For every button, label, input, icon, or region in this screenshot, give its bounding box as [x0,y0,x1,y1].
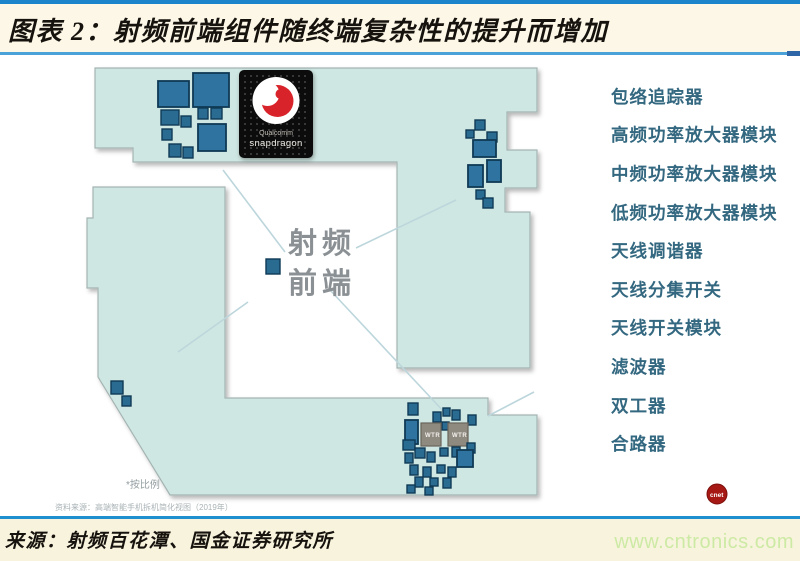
component-item: 双工器 [611,386,778,425]
svg-text:WTR: WTR [425,433,440,439]
snapdragon-logo-icon [253,77,300,124]
component-item: 合路器 [611,424,778,463]
rf-front-end-label: 射频 前端 [266,227,356,300]
report-figure: 图表 2：射频前端组件随终端复杂性的提升而增加 [0,0,800,561]
component-item: 中频功率放大器模块 [611,154,778,193]
figure-title: 图表 2：射频前端组件随终端复杂性的提升而增加 [8,11,788,48]
title-band: 图表 2：射频前端组件随终端复杂性的提升而增加 [0,4,800,52]
snapdragon-chip: Qualcomm snapdragon [239,70,313,158]
chip-brand-line2: snapdragon [239,138,313,149]
source-attribution: 来源：射频百花潭、国金证券研究所 [5,526,333,553]
component-item: 天线分集开关 [611,270,778,309]
bottom-blue-rule [0,516,800,519]
svg-text:WTR: WTR [452,433,467,439]
component-item: 天线调谐器 [611,231,778,270]
rf-label-line2: 前端 [288,266,356,300]
component-item: 包络追踪器 [611,77,778,116]
title-underline-end [787,51,800,56]
component-item: 滤波器 [611,347,778,386]
site-watermark: www.cntronics.com [614,531,794,554]
component-list: 包络追踪器 高频功率放大器模块 中频功率放大器模块 低频功率放大器模块 天线调谐… [611,77,778,463]
component-item: 低频功率放大器模块 [611,193,778,232]
scale-note: *按比例 [126,478,160,491]
cnet-badge-icon: cnet [707,484,727,504]
chip-brand-line1: Qualcomm [239,130,313,137]
component-item: 高频功率放大器模块 [611,116,778,155]
top-blue-rule [0,0,800,4]
component-item: 天线开关模块 [611,309,778,348]
rf-label-line1: 射频 [287,227,356,260]
title-underline [0,52,800,55]
svg-text:cnet: cnet [710,492,724,499]
footer-band: 来源：射频百花潭、国金证券研究所 www.cntronics.com [0,519,800,561]
diagram-caption: 资料来源：高端智能手机拆机简化视图（2019年） [55,502,233,512]
